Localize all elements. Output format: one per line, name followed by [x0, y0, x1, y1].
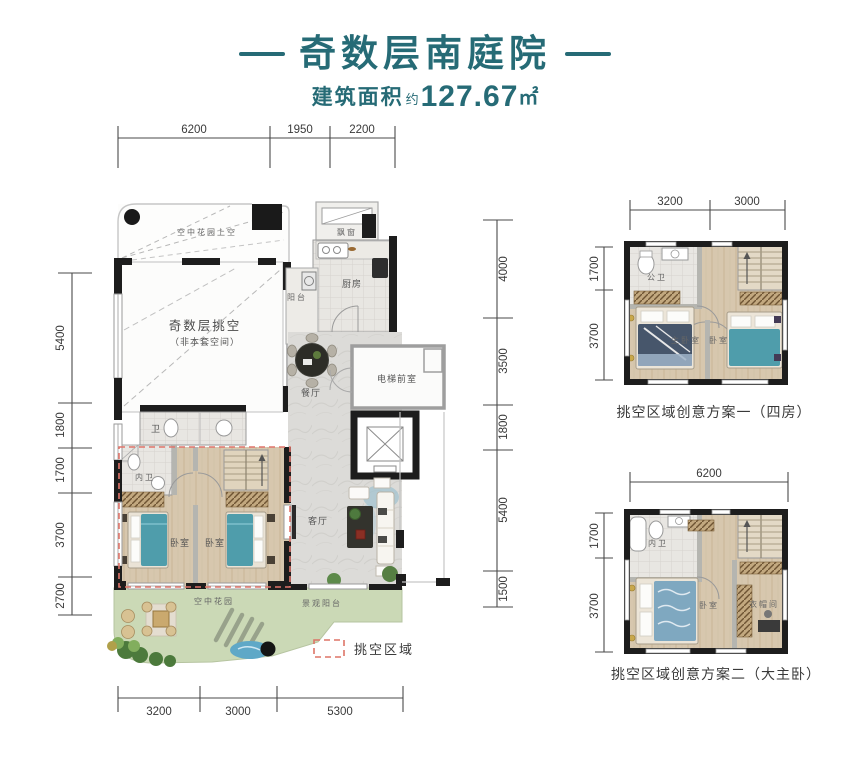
toilet: [164, 419, 178, 437]
label-living: 客厅: [308, 515, 328, 526]
p1-label-bedroom: 卧室: [709, 335, 729, 345]
plan-two-stairs: [738, 514, 784, 558]
stairs-main: [224, 450, 268, 490]
floorplan-poster: 奇数层南庭院 建筑面积约127.67㎡: [0, 0, 850, 771]
p2-dim-left-1: 1700: [589, 523, 601, 549]
kitchen-stove: [372, 258, 388, 278]
label-inner-bath: 内卫: [135, 472, 155, 482]
room-inner-bath: 内卫: [120, 445, 177, 495]
room-bath: 卫: [140, 405, 246, 445]
dim-left-4: 3700: [55, 522, 67, 548]
dim-bottom-1: 3200: [146, 706, 172, 718]
closet-desk: [758, 620, 780, 632]
label-bedroom-right: 卧室: [205, 537, 225, 548]
dim-left-1: 5400: [55, 325, 67, 351]
plan-two-bed: [629, 578, 698, 644]
dim-top-3: 2200: [349, 124, 375, 136]
p1-label-bath: 公卫: [647, 273, 667, 282]
main-floor-plan: 空中花园上空 奇数层挑空 （非本套空间） 飘窗: [55, 124, 513, 718]
plant: [382, 566, 398, 582]
plan-two-caption: 挑空区域创意方案二（大主卧）: [611, 666, 821, 682]
label-view-balcony: 景观阳台: [302, 598, 342, 608]
p2-dim-top-1: 6200: [696, 468, 722, 480]
p2-label-inner-bath: 内卫: [648, 538, 668, 548]
dim-right-4: 5400: [498, 497, 510, 523]
p2-dim-left-2: 3700: [589, 593, 601, 619]
label-bedroom-left: 卧室: [170, 537, 190, 548]
legend-swatch: [314, 640, 344, 657]
tv: [292, 505, 296, 539]
p1-label-master: 主卧室: [671, 335, 701, 345]
dim-left-2: 1800: [55, 412, 67, 438]
dim-right-5: 1500: [498, 576, 510, 602]
p2-label-bedroom: 卧室: [699, 600, 719, 610]
column-dot: [124, 209, 140, 225]
room-sky-garden-above: 空中花园上空: [118, 204, 289, 262]
p1-dim-left-1: 1700: [589, 256, 601, 282]
p1-dim-top-2: 3000: [734, 196, 760, 208]
label-balcony: 阳台: [287, 292, 307, 302]
room-void: 奇数层挑空 （非本套空间）: [118, 258, 291, 412]
plan-two: 6200 1700 3700 内卫: [589, 468, 821, 682]
label-kitchen: 厨房: [342, 278, 362, 289]
dim-right-3: 1800: [498, 414, 510, 440]
dim-top-1: 6200: [181, 124, 207, 136]
p1-dim-left-2: 3700: [589, 323, 601, 349]
plan-one-bed: [727, 312, 782, 368]
dim-bottom-3: 5300: [327, 706, 353, 718]
label-bay-window: 飘窗: [337, 227, 357, 237]
dim-top-2: 1950: [287, 124, 313, 136]
dim-left-3: 1700: [55, 457, 67, 483]
dim-right-1: 4000: [498, 256, 510, 282]
p1-dim-top-1: 3200: [657, 196, 683, 208]
plan-one-stairs: [738, 246, 784, 290]
p2-label-closet: 衣帽间: [749, 599, 779, 609]
garden-table: [153, 611, 169, 627]
room-kitchen: 飘窗 厨房: [313, 202, 397, 334]
label-sky-garden-above: 空中花园上空: [177, 227, 237, 237]
wardrobe-left: [120, 492, 164, 507]
label-elevator-lobby: 电梯前室: [377, 373, 417, 384]
plan-one: 3200 3000 1700 3700 公卫: [589, 196, 812, 420]
elevator-shaft: [354, 414, 416, 476]
closet-wardrobe: [737, 585, 752, 637]
dims-left: [58, 273, 92, 615]
legend-void-area: 挑空区域: [314, 640, 414, 657]
legend-label: 挑空区域: [354, 642, 414, 657]
dim-bottom-2: 3000: [225, 706, 251, 718]
label-bath: 卫: [151, 424, 161, 434]
label-sky-garden: 空中花园: [194, 596, 234, 606]
dim-right-2: 3500: [498, 348, 510, 374]
dim-left-5: 2700: [55, 583, 67, 609]
label-void: 奇数层挑空: [169, 318, 242, 333]
label-dining: 餐厅: [301, 387, 321, 398]
sink: [216, 420, 232, 436]
label-void-note: （非本套空间）: [170, 336, 240, 347]
floorplan-canvas: 空中花园上空 奇数层挑空 （非本套空间） 飘窗: [0, 0, 850, 771]
wall-block: [252, 204, 282, 230]
plan-one-caption: 挑空区域创意方案一（四房）: [617, 404, 812, 420]
wardrobe-right: [226, 492, 268, 507]
